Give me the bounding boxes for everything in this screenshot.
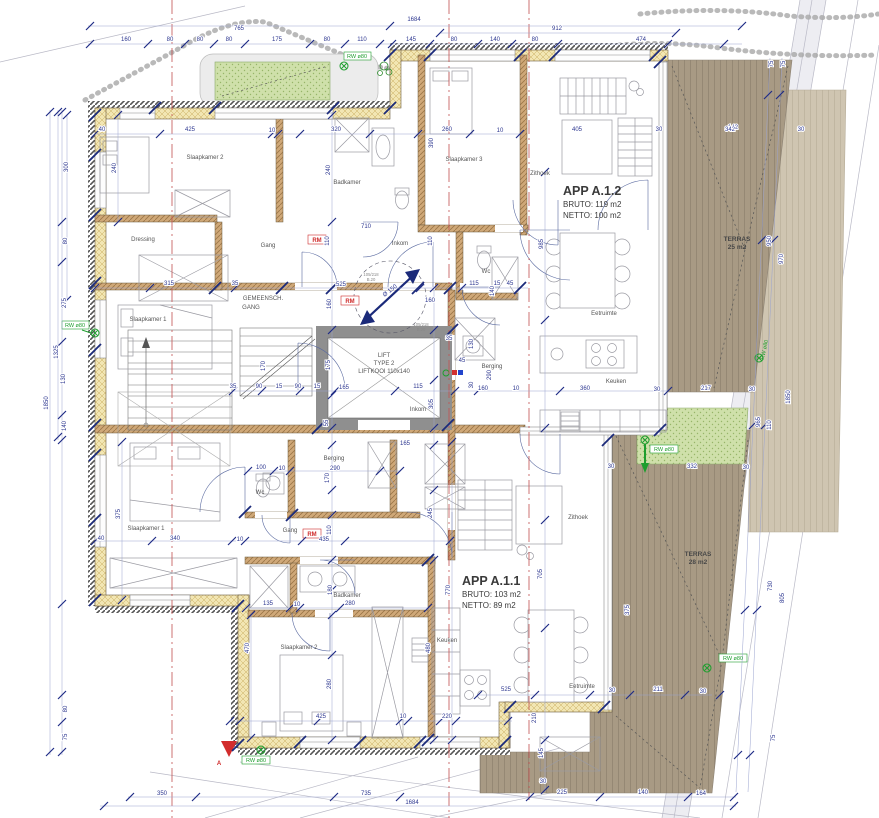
dimension-label: 950 — [767, 235, 773, 246]
dimension-label: 470 — [245, 642, 251, 653]
dimension-label: 375 — [116, 508, 122, 519]
dimension-label: 912 — [552, 26, 563, 32]
dimension-label: 175 — [272, 37, 283, 43]
dimension-label: 965 — [756, 416, 762, 427]
dimension-label: 342 — [725, 127, 736, 133]
dimension-label: 240 — [112, 162, 118, 173]
room-label: Keuken — [437, 638, 457, 644]
room-label: Slaapkamer 1 — [127, 526, 165, 532]
room-label: Badkamer — [333, 180, 360, 186]
lift-shaft — [316, 326, 452, 430]
dimension-label: 525 — [501, 687, 512, 693]
dimension-label: 1684 — [407, 17, 421, 23]
dimension-label: 80 — [167, 37, 174, 43]
dimension-label: 332 — [687, 464, 698, 470]
terrace-label: 28 m2 — [689, 559, 708, 566]
dimension-label: 735 — [361, 791, 372, 797]
rw-drain-label: RW ø80 — [65, 323, 85, 329]
dimension-label: 300 — [64, 161, 70, 172]
dimension-label: 160 — [327, 298, 333, 309]
dimension-label: 30 — [656, 127, 663, 133]
dimension-label: 290 — [487, 369, 493, 380]
dimension-label: 10 — [497, 128, 504, 134]
apartment-label: BRUTO: 103 m2 — [462, 590, 522, 599]
room-label: Keuken — [606, 379, 626, 385]
dimension-label: 80 — [451, 37, 458, 43]
dimension-label: 340 — [170, 536, 181, 542]
room-label: Slaapkamer 2 — [280, 645, 318, 651]
terrace-label: TERRAS — [724, 236, 751, 243]
dimension-label: 240 — [326, 164, 332, 175]
dimension-label: 140 — [490, 285, 496, 296]
dimension-label: 175 — [326, 359, 332, 370]
rm-mark: A — [217, 761, 222, 767]
dimension-label: 35 — [446, 336, 453, 342]
dimension-label: 360 — [580, 386, 591, 392]
dimension-label: 80 — [63, 705, 69, 712]
dimension-label: 75 — [769, 60, 775, 67]
rm-mark: RM — [307, 532, 316, 538]
lift-label: LIFT — [378, 353, 391, 359]
dimension-label: 290 — [330, 466, 341, 472]
dimension-label: 260 — [442, 127, 453, 133]
dimension-label: 425 — [316, 714, 327, 720]
dimension-label: 320 — [331, 127, 342, 133]
dimension-label: 130 — [61, 373, 67, 384]
dimension-label: 1684 — [405, 800, 419, 806]
rm-mark: RM — [345, 299, 354, 305]
dimension-label: 170 — [261, 360, 267, 371]
dimension-label: 75 — [781, 60, 787, 67]
dimension-label: 305 — [429, 398, 435, 409]
dimension-label: 160 — [478, 386, 489, 392]
room-label: Inkom — [392, 241, 408, 247]
dimension-label: 80 — [532, 37, 539, 43]
dimension-label: 55 — [324, 419, 330, 426]
dimension-label: 30 — [798, 127, 805, 133]
dimension-label: 115 — [469, 281, 479, 287]
dimension-label: 225 — [557, 790, 568, 796]
room-label: Gang — [283, 528, 298, 534]
dimension-label: 805 — [780, 592, 786, 603]
dimension-label: 140 — [638, 790, 649, 796]
dimension-label: 30 — [654, 387, 661, 393]
apartment-label: BRUTO: 119 m2 — [563, 200, 622, 209]
dimension-label: 160 — [121, 37, 132, 43]
dimension-label: 145 — [539, 747, 545, 758]
dimension-label: 435 — [319, 537, 330, 543]
dimension-label: 970 — [779, 253, 785, 264]
dimension-label: 275 — [62, 297, 68, 308]
dimension-label: 211 — [653, 687, 663, 693]
dimension-label: 80 — [63, 237, 69, 244]
terrace-label: TERRAS — [685, 551, 712, 558]
dimension-label: 10 — [294, 602, 301, 608]
dimension-label: 80 — [226, 37, 233, 43]
dimension-label: 140 — [62, 420, 68, 431]
room-label: GANG — [242, 305, 260, 311]
dimension-label: 170 — [325, 472, 331, 483]
dimension-label: 220 — [442, 714, 453, 720]
dimension-label: 405 — [572, 127, 583, 133]
dimension-label: 710 — [361, 224, 372, 230]
dimension-label: 30 — [608, 464, 615, 470]
rw-drain-label: RW ø80 — [654, 447, 674, 453]
room-label: Badkamer — [333, 593, 360, 599]
dimension-label: 525 — [336, 282, 347, 288]
dimension-label: 140 — [490, 37, 501, 43]
room-label: Zithoek — [530, 171, 551, 177]
dimension-label: 390 — [429, 137, 435, 148]
dimension-label: 210 — [532, 712, 538, 723]
dimension-label: 45 — [507, 281, 514, 287]
room-label: GEMEENSCH. — [243, 296, 284, 302]
dimension-label: 705 — [538, 568, 544, 579]
dimension-label: 165 — [339, 385, 350, 391]
dimension-label: 30 — [743, 465, 750, 471]
dimension-label: 100 — [256, 465, 267, 471]
rw-drain-label: RW ø80 — [347, 54, 367, 60]
room-label: Gang — [261, 243, 276, 249]
room-label: Eetruimte — [591, 311, 617, 317]
dimension-label: 180 — [328, 584, 334, 595]
apartment-label: NETTO: 89 m2 — [462, 601, 516, 610]
green-roof-top — [200, 54, 378, 106]
room-label: Inkom — [410, 407, 426, 413]
rm-mark: RM — [312, 238, 321, 244]
lift-label: LIFTKOOI 110x140 — [358, 369, 410, 375]
dimension-label: 30 — [609, 688, 616, 694]
floor-plan-canvas: APP A.1.2BRUTO: 119 m2NETTO: 100 m2APP A… — [0, 0, 879, 818]
room-label: Berging — [324, 456, 345, 462]
dimension-label: 80 — [324, 37, 331, 43]
dimension-label: 10 — [513, 386, 520, 392]
dimension-label: 350 — [157, 791, 168, 797]
room-label: Wc — [256, 490, 265, 496]
dimension-label: 30 — [749, 387, 756, 393]
dimension-label: 10 — [400, 714, 407, 720]
floor-plan-page: APP A.1.2BRUTO: 119 m2NETTO: 100 m2APP A… — [0, 0, 879, 818]
dimension-label: 245 — [428, 507, 434, 518]
dimension-label: 1850 — [44, 396, 50, 410]
dimension-label: 165 — [400, 441, 411, 447]
dimension-label: 15 — [314, 384, 321, 390]
room-label: Slaapkamer 1 — [129, 317, 167, 323]
room-label: Zithoek — [568, 515, 589, 521]
dimension-label: 110 — [357, 37, 367, 43]
dimension-label: 90 — [256, 384, 263, 390]
room-label: Slaapkamer 3 — [445, 157, 483, 163]
dimension-label: 474 — [636, 37, 647, 43]
annotation-label: B.20 — [417, 327, 426, 332]
dimension-label: 375 — [625, 604, 631, 615]
dimension-label: 75 — [771, 734, 777, 741]
dimension-label: 110 — [767, 420, 773, 430]
dimension-label: 110 — [428, 236, 434, 246]
dimension-label: 40 — [99, 127, 106, 133]
dimension-label: 35 — [230, 384, 237, 390]
dimension-label: 730 — [768, 580, 774, 591]
dimension-label: 30 — [469, 381, 475, 388]
dimension-label: 30 — [700, 689, 707, 695]
dimension-label: 45 — [459, 358, 466, 364]
dimension-label: 10 — [279, 466, 286, 472]
dimension-label: 10 — [269, 128, 276, 134]
room-label: Slaapkamer 2 — [186, 155, 224, 161]
apartment-label: APP A.1.2 — [563, 184, 621, 198]
dimension-label: 40 — [98, 536, 105, 542]
dimension-label: 425 — [185, 127, 196, 133]
apartment-label: NETTO: 100 m2 — [563, 211, 622, 220]
dimension-label: 130 — [469, 338, 475, 349]
dimension-label: 985 — [539, 238, 545, 249]
rw-drain-label: RW ø80 — [723, 656, 743, 662]
dimension-label: 135 — [263, 601, 274, 607]
apartment-label: APP A.1.1 — [462, 574, 520, 588]
dimension-label: 110 — [327, 525, 333, 535]
dimension-label: 15 — [276, 384, 283, 390]
lift-label: TYPE 2 — [374, 361, 395, 367]
dimension-label: 164 — [696, 791, 707, 797]
rw-drain-label: RW ø80 — [246, 758, 266, 764]
room-label: Berging — [482, 364, 503, 370]
dimension-label: 30 — [540, 779, 547, 785]
room-label: Wc — [482, 269, 491, 275]
dimension-label: 75 — [63, 733, 69, 740]
dimension-label: 35 — [232, 281, 239, 287]
dimension-label: 280 — [327, 678, 333, 689]
room-label: Dressing — [131, 237, 155, 243]
annotation-label: B.20 — [367, 277, 376, 282]
dimension-label: 110 — [325, 236, 331, 246]
dimension-label: 160 — [425, 298, 436, 304]
dimension-label: 280 — [345, 601, 356, 607]
dimension-label: 90 — [295, 384, 302, 390]
terrace-label: 25 m2 — [728, 244, 747, 251]
dimension-label: 115 — [413, 384, 423, 390]
dimension-label: 80 — [197, 37, 204, 43]
dimension-label: 1325 — [54, 345, 60, 359]
dimension-label: 1850 — [786, 390, 792, 404]
dimension-label: 145 — [406, 37, 417, 43]
room-label: Eetruimte — [569, 684, 595, 690]
dimension-label: 217 — [701, 386, 712, 392]
dimension-label: 480 — [426, 642, 432, 653]
dimension-label: 765 — [234, 26, 245, 32]
dimension-label: 10 — [237, 537, 244, 543]
dimension-label: 770 — [446, 584, 452, 595]
dimension-label: 315 — [164, 281, 175, 287]
